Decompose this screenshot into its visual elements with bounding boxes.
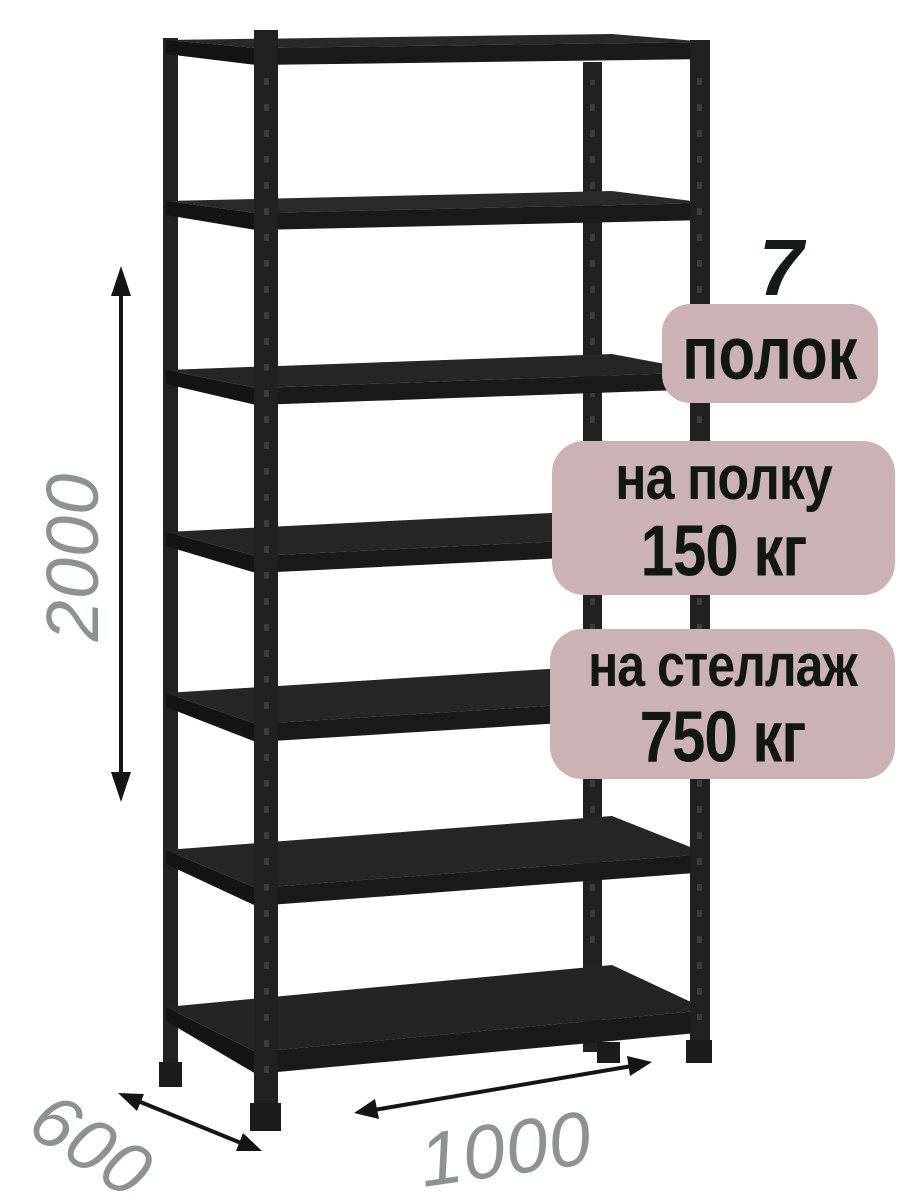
shelf-7 [166, 965, 708, 1074]
rack-illustration [0, 0, 900, 1200]
back-left-post [159, 38, 182, 1087]
shelf-count-number: 7 [716, 228, 846, 308]
product-image: 2000 600 1000 7 полок на полку 150 кг на… [0, 0, 900, 1200]
shelf-2 [166, 191, 708, 230]
per-shelf-load-label: на полку [615, 444, 832, 514]
shelf-count-badge: полок [662, 304, 878, 403]
per-rack-load-value: 750 кг [588, 699, 857, 777]
per-shelf-load-text: на полку 150 кг [615, 444, 832, 592]
shelf-6 [166, 816, 708, 906]
front-left-post [250, 30, 281, 1131]
per-shelf-load-badge: на полку 150 кг [552, 441, 895, 595]
height-dimension-label: 2000 [36, 447, 114, 667]
per-shelf-load-value: 150 кг [615, 514, 832, 592]
height-arrow [111, 266, 131, 802]
shelf-1 [166, 34, 708, 65]
per-rack-load-text: на стеллаж 750 кг [588, 632, 857, 777]
per-rack-load-label: на стеллаж [588, 632, 857, 699]
shelf-3 [166, 354, 708, 405]
shelf-count-badge-label: полок [682, 316, 857, 391]
per-rack-load-badge: на стеллаж 750 кг [550, 629, 895, 779]
